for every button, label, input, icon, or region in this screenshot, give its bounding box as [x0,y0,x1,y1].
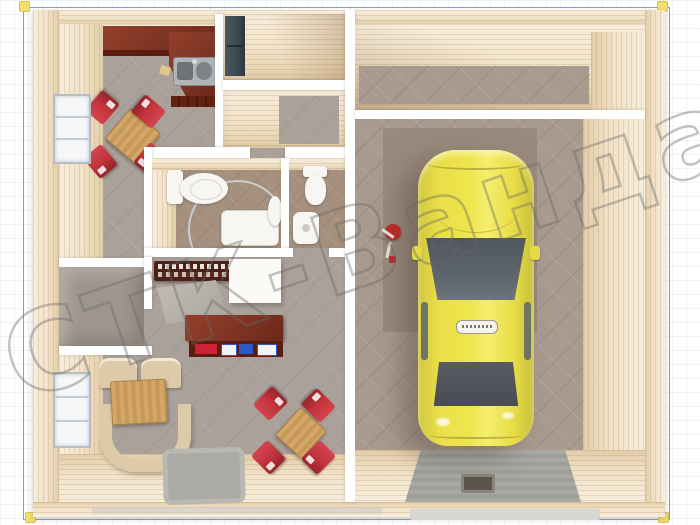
red-book [195,344,217,354]
interior-wall [59,258,152,267]
desk [185,315,283,341]
bathroom-wall-face [152,158,281,170]
wardrobe [225,16,245,76]
toilet-seat [190,179,222,200]
desk-shelf [189,341,283,357]
interior-wall [215,14,223,150]
garage-right-wall-face [583,119,645,451]
faucet [192,59,197,64]
interior-wall [144,147,152,257]
garage-storage-floor [359,66,589,104]
rear-window [432,362,520,406]
house-garage-wall [345,10,355,502]
interior-wall [223,80,345,90]
side-mirror [530,246,540,260]
sink-basin [177,62,193,80]
badge-text-marks [462,325,492,328]
floorplan-render-canvas: { "image": { "type": "3d-floor-plan-top-… [0,0,700,525]
garage-storage-room [355,24,645,110]
corridor-floor [223,90,345,148]
washbasin [268,196,281,226]
garage-door-apron [410,509,600,520]
toilet-bowl [305,175,326,205]
interior-wall [355,110,645,119]
interior-wall [144,257,152,309]
doormat [162,447,245,505]
hood-seam [432,180,520,233]
corridor-tile [279,96,339,144]
living-room-window [53,372,91,448]
corner-pin-icon [19,1,30,12]
side-mirror [412,246,422,260]
drain-hatch [461,474,495,493]
kitchen-window [53,94,91,164]
interior-wall [148,147,250,158]
storage-wall-face [591,32,645,110]
interior-wall [329,248,345,257]
kitchen-sink [173,57,217,86]
bottom-apron [92,507,382,514]
interior-wall [144,248,293,257]
house-plan [33,10,665,517]
interior-wall [59,346,152,355]
hood-front-seam [428,158,524,170]
trunk-highlight [436,418,450,426]
roof-badge [456,320,498,334]
kitchen-cabinet-front [171,96,217,107]
wardrobe-divider [227,45,243,47]
sink-basin [196,62,212,80]
white-cabinet [229,259,281,303]
box [239,344,253,354]
toilet-bowl [180,173,228,204]
red-cart-wheel [389,256,396,263]
red-cart [381,222,403,262]
windshield [424,238,528,300]
coffee-table [110,379,168,426]
yellow-car [418,150,534,446]
bathroom [152,158,281,248]
exterior-wall-right [645,10,665,517]
box [257,344,277,356]
box [221,344,237,356]
side-window [524,302,531,360]
interior-wall [285,147,345,158]
side-window [421,302,428,360]
trunk-highlight [502,412,514,419]
storage-room-floor [59,267,144,346]
rear-bumper-seam [430,433,522,439]
toilet-room [289,158,345,248]
interior-wall [281,158,289,248]
washbasin [293,212,319,244]
basin-drain [302,224,310,232]
